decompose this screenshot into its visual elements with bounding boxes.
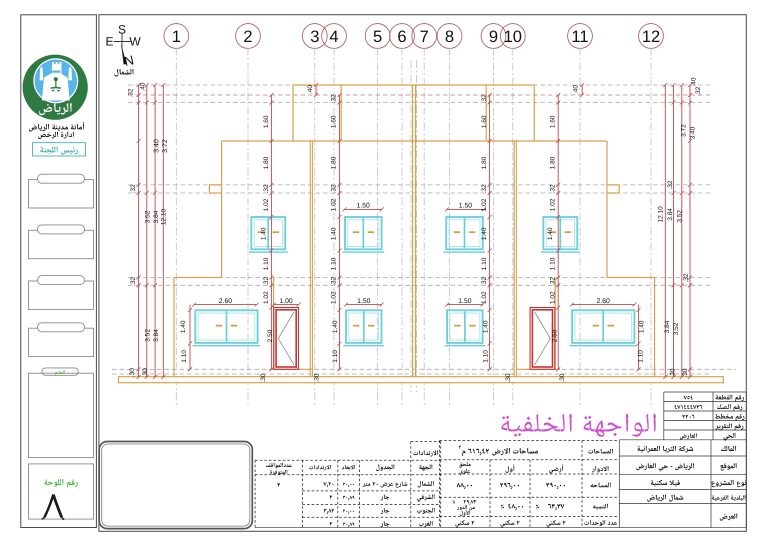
svg-text:5: 5 — [373, 28, 382, 46]
svg-text:.32: .32 — [331, 277, 338, 286]
svg-text:.40: .40 — [307, 85, 314, 94]
svg-text:.30: .30 — [559, 373, 566, 382]
svg-text:2: 2 — [243, 28, 252, 46]
svg-text:S: S — [118, 23, 126, 37]
svg-text:1.80: 1.80 — [481, 156, 488, 169]
svg-text:.32: .32 — [130, 277, 137, 286]
svg-text:.32: .32 — [667, 180, 674, 189]
svg-text:1.10: 1.10 — [481, 257, 488, 270]
svg-text:1.10: 1.10 — [638, 350, 645, 363]
svg-text:1.02: 1.02 — [481, 291, 488, 304]
svg-text:3: 3 — [310, 28, 319, 46]
svg-text:2.50: 2.50 — [267, 329, 274, 342]
svg-text:.32: .32 — [128, 88, 135, 97]
svg-text:.30: .30 — [505, 373, 512, 382]
svg-text:1.02: 1.02 — [481, 198, 488, 211]
svg-text:3.84: 3.84 — [664, 320, 671, 333]
svg-text:.30: .30 — [682, 368, 689, 377]
svg-text:2.60: 2.60 — [219, 298, 232, 305]
svg-text:1.10: 1.10 — [332, 350, 339, 363]
svg-text:1.40: 1.40 — [261, 227, 268, 240]
svg-text:1.02: 1.02 — [263, 291, 270, 304]
svg-text:.32: .32 — [481, 277, 488, 286]
svg-text:1.40: 1.40 — [332, 320, 339, 333]
svg-text:1.50: 1.50 — [357, 203, 370, 210]
svg-text:1.02: 1.02 — [549, 291, 556, 304]
svg-text:1.40: 1.40 — [483, 320, 490, 333]
svg-text:1.10: 1.10 — [331, 257, 338, 270]
svg-text:8: 8 — [445, 28, 454, 46]
svg-text:1.60: 1.60 — [549, 115, 556, 128]
svg-text:3.40: 3.40 — [154, 139, 161, 153]
svg-text:1.60: 1.60 — [331, 115, 338, 128]
svg-text:12.10: 12.10 — [658, 206, 665, 223]
svg-text:1.50: 1.50 — [458, 298, 471, 305]
svg-text:.40: .40 — [691, 77, 698, 86]
svg-text:1.50: 1.50 — [357, 298, 370, 305]
svg-text:9: 9 — [489, 28, 498, 46]
svg-text:1.80: 1.80 — [549, 156, 556, 169]
svg-text:11: 11 — [571, 28, 588, 46]
svg-text:.32: .32 — [331, 184, 338, 193]
svg-text:1.80: 1.80 — [331, 156, 338, 169]
svg-text:.32: .32 — [481, 94, 488, 103]
svg-text:.30: .30 — [142, 368, 149, 377]
svg-text:.30: .30 — [129, 368, 136, 377]
svg-text:3.52: 3.52 — [145, 210, 152, 223]
svg-text:.30: .30 — [669, 368, 676, 377]
svg-text:.32: .32 — [130, 184, 137, 193]
svg-text:1.40: 1.40 — [331, 227, 338, 240]
svg-text:3.84: 3.84 — [153, 329, 160, 342]
svg-text:.40: .40 — [140, 82, 147, 91]
svg-text:W: W — [129, 35, 141, 49]
svg-text:1.02: 1.02 — [331, 291, 338, 304]
svg-text:E: E — [105, 35, 113, 49]
svg-text:.32: .32 — [263, 184, 270, 193]
svg-text:3.52: 3.52 — [673, 322, 680, 335]
svg-text:3.72: 3.72 — [681, 124, 688, 137]
svg-text:2.60: 2.60 — [597, 298, 610, 305]
svg-text:.30: .30 — [314, 373, 321, 382]
svg-text:1.02: 1.02 — [549, 198, 556, 211]
svg-text:1.40: 1.40 — [180, 320, 187, 333]
svg-text:12: 12 — [642, 28, 660, 46]
svg-text:.32: .32 — [263, 277, 270, 286]
svg-text:1.40: 1.40 — [639, 320, 646, 333]
svg-text:3.52: 3.52 — [145, 329, 152, 342]
svg-text:.32: .32 — [331, 94, 338, 103]
svg-text:.32: .32 — [549, 184, 556, 193]
svg-text:2.50: 2.50 — [551, 329, 558, 342]
svg-text:3.84: 3.84 — [667, 208, 674, 221]
svg-text:1.50: 1.50 — [459, 203, 472, 210]
svg-text:1.60: 1.60 — [481, 115, 488, 128]
svg-text:.30: .30 — [260, 373, 267, 382]
svg-text:.32: .32 — [683, 273, 690, 282]
svg-text:3.40: 3.40 — [689, 126, 696, 139]
svg-text:1.10: 1.10 — [483, 350, 490, 363]
svg-text:.32: .32 — [549, 277, 556, 286]
svg-text:1.40: 1.40 — [547, 227, 554, 240]
svg-text:1.80: 1.80 — [263, 156, 270, 169]
svg-text:.32: .32 — [481, 184, 488, 193]
svg-text:1.10: 1.10 — [263, 257, 270, 270]
svg-text:1.40: 1.40 — [481, 227, 488, 240]
svg-text:10: 10 — [504, 28, 522, 46]
svg-text:3.84: 3.84 — [153, 210, 160, 223]
svg-text:7: 7 — [420, 28, 429, 46]
svg-text:1.02: 1.02 — [263, 198, 270, 211]
svg-text:1.02: 1.02 — [331, 198, 338, 211]
svg-text:1.00: 1.00 — [279, 298, 292, 305]
svg-text:1.10: 1.10 — [549, 257, 556, 270]
svg-text:6: 6 — [397, 28, 406, 46]
svg-text:1.60: 1.60 — [263, 115, 270, 128]
svg-text:.40: .40 — [573, 85, 580, 94]
svg-text:4: 4 — [329, 28, 338, 46]
svg-text:3.52: 3.52 — [676, 210, 683, 223]
svg-text:.32: .32 — [695, 86, 702, 95]
svg-text:12.10: 12.10 — [161, 208, 168, 225]
svg-text:1.10: 1.10 — [181, 350, 188, 363]
svg-text:1: 1 — [172, 28, 181, 46]
svg-text:3.72: 3.72 — [162, 139, 169, 153]
